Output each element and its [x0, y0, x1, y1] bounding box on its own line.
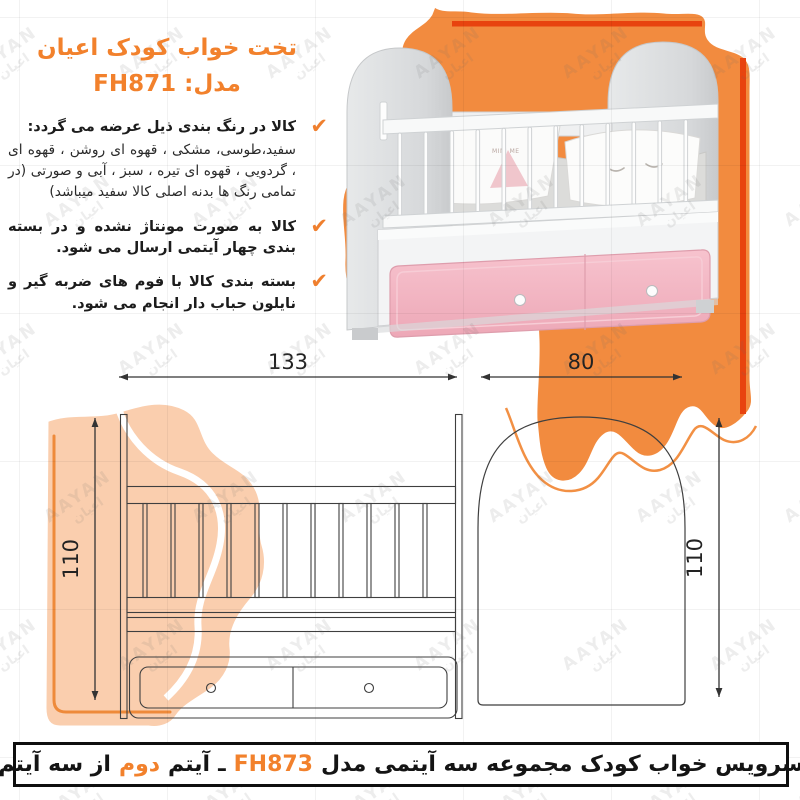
- drawer-knob-left: [515, 295, 526, 306]
- page-title: تخت خواب کودک اعیان مدل: FH871: [14, 34, 320, 97]
- dimension-front-width: 133: [119, 350, 457, 377]
- footer-model: FH873: [234, 752, 313, 777]
- model-value: FH871: [93, 71, 176, 97]
- feature-list: ✔ کالا در رنگ بندی ذیل عرضه می گردد: سفی…: [8, 116, 330, 327]
- infographic-page: MINI ME: [0, 0, 800, 800]
- footer-separator: ـ: [218, 752, 226, 777]
- svg-text:110: 110: [59, 539, 83, 579]
- footer-text-main: سرویس خواب کودک مجموعه سه آیتمی مدل: [321, 752, 800, 777]
- svg-text:80: 80: [568, 350, 595, 374]
- checkmark-icon: ✔: [310, 269, 328, 293]
- red-stripe-horizontal: [452, 21, 702, 27]
- model-label: مدل:: [184, 71, 241, 97]
- list-item: ✔ بسته بندی کالا با فوم های ضربه گیر و ن…: [8, 271, 330, 313]
- bullet-heading: کالا در رنگ بندی ذیل عرضه می گردد:: [8, 116, 296, 137]
- crib-right-foot: [696, 300, 714, 313]
- footer-item-label: آیتم: [168, 752, 210, 777]
- svg-text:110: 110: [683, 538, 707, 578]
- bullet-heading: بسته بندی کالا با فوم های ضربه گیر و نای…: [8, 271, 296, 313]
- product-title: تخت خواب کودک اعیان: [14, 34, 320, 64]
- list-item: ✔ کالا به صورت مونتاژ نشده و در بسته بند…: [8, 216, 330, 258]
- list-item: ✔ کالا در رنگ بندی ذیل عرضه می گردد: سفی…: [8, 116, 330, 203]
- footer-banner: سرویس خواب کودک مجموعه سه آیتمی مدل FH87…: [13, 742, 789, 787]
- footer-item-number: دوم: [119, 752, 160, 777]
- bullet-body: سفید،طوسی، مشکی ، قهوه ای روشن ، قهوه ای…: [8, 140, 296, 203]
- footer-item-rest: از سه آیتم: [0, 752, 111, 777]
- svg-text:133: 133: [268, 350, 308, 374]
- checkmark-icon: ✔: [310, 214, 328, 238]
- bullet-heading: کالا به صورت مونتاژ نشده و در بسته بندی …: [8, 216, 296, 258]
- product-model: مدل: FH871: [14, 71, 320, 97]
- drawer-knob-right: [647, 286, 658, 297]
- crib-left-foot: [352, 328, 378, 340]
- red-stripe-vertical: [740, 58, 746, 414]
- checkmark-icon: ✔: [310, 114, 328, 138]
- dimension-side-height: 110: [683, 418, 719, 697]
